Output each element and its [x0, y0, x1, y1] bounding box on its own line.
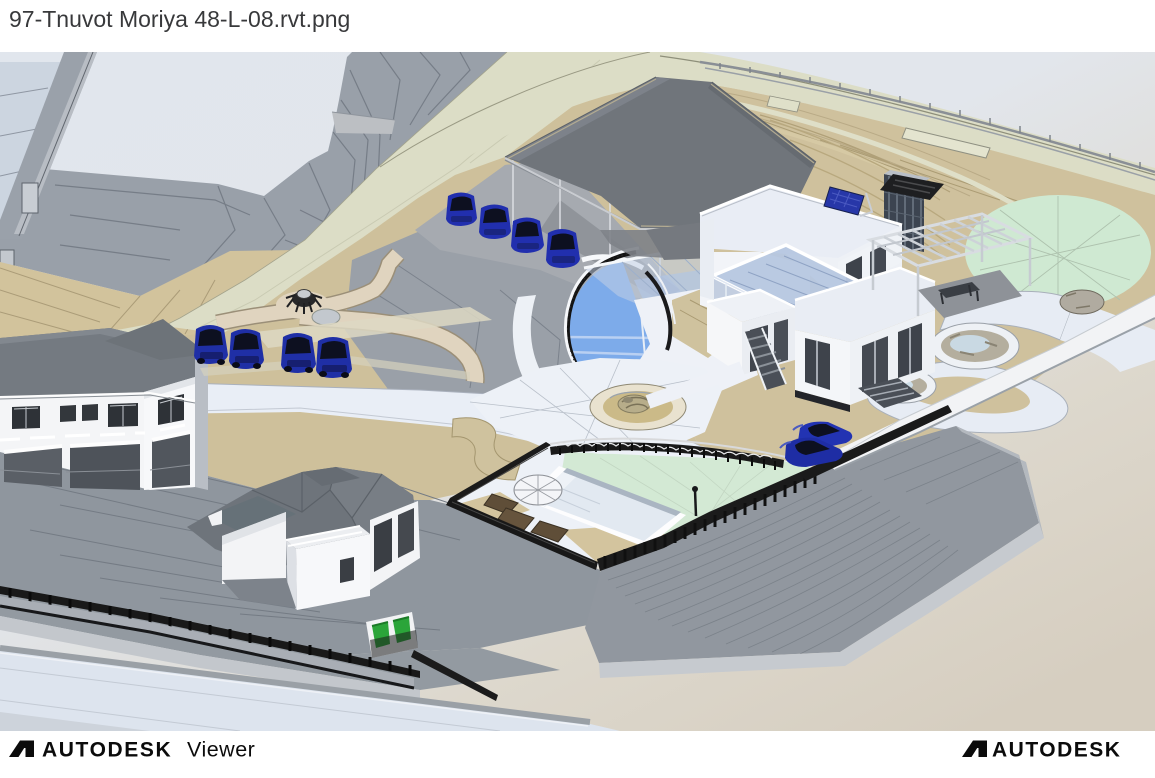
- svg-text:Viewer: Viewer: [187, 738, 255, 762]
- svg-text:AUTODESK: AUTODESK: [42, 739, 172, 762]
- svg-text:AUTODESK: AUTODESK: [992, 739, 1121, 762]
